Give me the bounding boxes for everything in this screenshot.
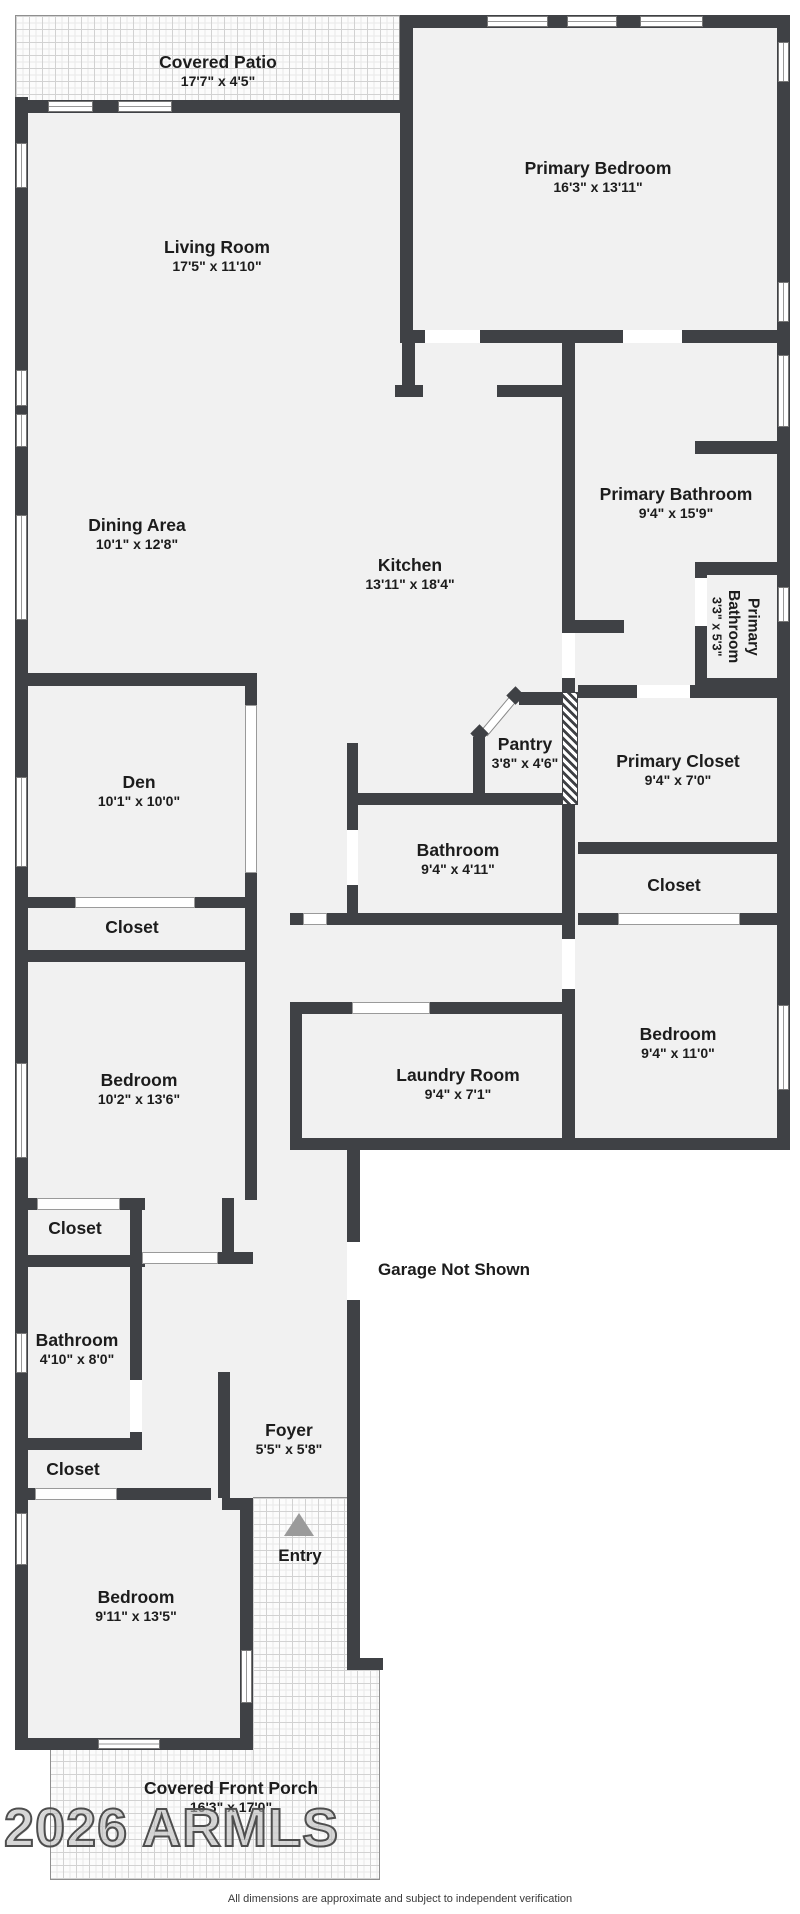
room-name: Foyer [256, 1420, 323, 1441]
room-name: Bathroom [417, 840, 500, 861]
room-name: Closet [48, 1218, 101, 1239]
room-dims: 10'2" x 13'6" [98, 1091, 180, 1108]
room-label-bathroom-hall: Bathroom 9'4" x 4'11" [417, 840, 500, 878]
room-dims: 9'4" x 7'1" [396, 1086, 519, 1103]
room-label-laundry-room: Laundry Room 9'4" x 7'1" [396, 1065, 519, 1103]
window [98, 1739, 160, 1749]
floor-plan: Covered Patio 17'7" x 4'5" Primary Bedro… [0, 0, 800, 1914]
room-dims: 16'3" x 13'11" [525, 179, 672, 196]
wall [400, 15, 413, 343]
room-label-foyer: Foyer 5'5" x 5'8" [256, 1420, 323, 1458]
room-name: Primary Closet [616, 751, 740, 772]
wall [562, 620, 624, 633]
window [16, 370, 27, 406]
door-opening [130, 1380, 142, 1432]
window [16, 1063, 27, 1158]
cased-opening [142, 1252, 218, 1264]
wall [245, 873, 257, 962]
room-name: Covered Patio [159, 52, 277, 73]
disclaimer-text: All dimensions are approximate and subje… [0, 1893, 800, 1905]
room-name: Den [98, 772, 180, 793]
room-dims: 9'4" x 4'11" [417, 861, 500, 878]
window [778, 355, 789, 427]
door-opening [347, 1242, 360, 1300]
wall [578, 913, 618, 925]
room-name: Closet [647, 875, 700, 896]
room-label-closet-right: Closet [647, 875, 700, 896]
wall [740, 913, 790, 925]
cased-opening [75, 897, 195, 908]
wall [562, 925, 575, 939]
room-label-bathroom-small: Bathroom 4'10" x 8'0" [36, 1330, 119, 1368]
room-label-primary-bathroom: Primary Bathroom 9'4" x 15'9" [600, 484, 753, 522]
room-label-closet-den: Closet [105, 917, 158, 938]
room-dims: 10'1" x 12'8" [88, 536, 186, 553]
door-opening [623, 330, 682, 343]
wall [15, 673, 257, 686]
garage-note: Garage Not Shown [378, 1260, 530, 1280]
room-label-den: Den 10'1" x 10'0" [98, 772, 180, 810]
room-dims: 9'4" x 15'9" [600, 505, 753, 522]
room-dims: 9'11" x 13'5" [95, 1608, 176, 1625]
wall [562, 343, 575, 633]
room-dims: 17'7" x 4'5" [159, 73, 277, 90]
room-label-primary-bedroom: Primary Bedroom 16'3" x 13'11" [525, 158, 672, 196]
wall [695, 562, 707, 578]
window [778, 282, 789, 322]
cased-opening [352, 1002, 430, 1014]
wall [245, 673, 257, 705]
wall [218, 1372, 230, 1498]
cased-opening [35, 1488, 117, 1500]
room-name: Dining Area [88, 515, 186, 536]
wall [777, 15, 790, 1150]
room-name: Primary Bathroom [600, 484, 753, 505]
room-dims: 3'8" x 4'6" [492, 755, 559, 772]
room-name: Bedroom [98, 1070, 180, 1091]
wall [480, 330, 623, 343]
wall [562, 678, 575, 692]
window [16, 515, 27, 620]
wall [578, 685, 637, 698]
cased-opening [303, 913, 327, 925]
wall [15, 97, 28, 1750]
wall [347, 805, 358, 830]
wall [395, 385, 423, 397]
room-dims: 5'5" x 5'8" [256, 1441, 323, 1458]
door-opening [425, 330, 480, 343]
room-dims: 17'5" x 11'10" [164, 258, 270, 275]
room-name: Laundry Room [396, 1065, 519, 1086]
room-dims: 10'1" x 10'0" [98, 793, 180, 810]
window [778, 587, 789, 622]
room-label-primary-bathroom-small: Primary Bathroom 3'3" x 5'3" [708, 572, 762, 682]
wall [400, 330, 425, 343]
room-label-bedroom-right: Bedroom 9'4" x 11'0" [640, 1024, 717, 1062]
window [241, 1650, 252, 1703]
window [16, 143, 27, 188]
room-dims: 13'11" x 18'4" [365, 576, 454, 593]
door-opening [562, 939, 575, 989]
cased-opening [37, 1198, 120, 1210]
door-opening [637, 685, 690, 698]
wall [562, 805, 575, 925]
entry-label: Entry [278, 1546, 321, 1566]
room-label-bedroom-left: Bedroom 10'2" x 13'6" [98, 1070, 180, 1108]
watermark: 2026 ARMLS [4, 1797, 339, 1859]
window [16, 1513, 27, 1565]
room-label-bedroom-bottom: Bedroom 9'11" x 13'5" [95, 1587, 176, 1625]
wall [473, 737, 485, 793]
room-name: Pantry [492, 734, 559, 755]
room-name: Bedroom [640, 1024, 717, 1045]
room-name: Closet [46, 1459, 99, 1480]
room-name: Kitchen [365, 555, 454, 576]
wall [15, 1255, 145, 1267]
room-label-dining-area: Dining Area 10'1" x 12'8" [88, 515, 186, 553]
window [778, 1005, 789, 1090]
room-label-living-room: Living Room 17'5" x 11'10" [164, 237, 270, 275]
room-label-pantry: Pantry 3'8" x 4'6" [492, 734, 559, 772]
room-label-closet-bedroom-left: Closet [48, 1218, 101, 1239]
wall [347, 1150, 360, 1670]
window [567, 16, 617, 27]
door-opening [695, 578, 707, 626]
room-name: Primary Bedroom [525, 158, 672, 179]
door-opening [562, 633, 575, 678]
entry-threshold [253, 1497, 350, 1498]
room-label-kitchen: Kitchen 13'11" x 18'4" [365, 555, 454, 593]
wall [245, 962, 257, 1200]
window [778, 42, 789, 82]
wall [290, 1002, 302, 1150]
cased-opening [618, 913, 740, 925]
window [16, 777, 27, 867]
window [640, 16, 703, 27]
cased-opening [245, 705, 257, 873]
wall [695, 441, 790, 454]
wall [347, 1658, 383, 1670]
wall [218, 1252, 253, 1264]
window [16, 1333, 27, 1373]
window [487, 16, 548, 27]
door-opening [347, 830, 358, 885]
room-dims: 9'4" x 11'0" [640, 1045, 717, 1062]
wall [348, 793, 578, 805]
porch-edge-right [379, 1670, 380, 1880]
wall [682, 330, 790, 343]
wall [347, 743, 358, 805]
room-label-primary-closet: Primary Closet 9'4" x 7'0" [616, 751, 740, 789]
hatched-wall [562, 692, 578, 805]
room-dims: 3'3" x 5'3" [708, 572, 724, 682]
window [16, 414, 27, 447]
room-name: Bathroom [36, 1330, 119, 1351]
room-name: Closet [105, 917, 158, 938]
wall [15, 1438, 142, 1450]
wall [130, 1198, 142, 1267]
window [118, 101, 172, 112]
wall [519, 692, 562, 705]
window [48, 101, 93, 112]
room-name: Primary Bathroom [724, 572, 763, 682]
room-label-closet-bottom: Closet [46, 1459, 99, 1480]
wall [690, 685, 790, 698]
room-label-covered-patio: Covered Patio 17'7" x 4'5" [159, 52, 277, 90]
room-dims: 4'10" x 8'0" [36, 1351, 119, 1368]
entry-arrow-icon [284, 1513, 314, 1536]
wall [290, 913, 565, 925]
wall [290, 1138, 790, 1150]
wall [578, 842, 790, 854]
wall [240, 1498, 253, 1748]
wall [497, 385, 563, 397]
porch-edge-bottom [50, 1879, 380, 1880]
wall [15, 950, 257, 962]
room-name: Living Room [164, 237, 270, 258]
room-name: Bedroom [95, 1587, 176, 1608]
room-dims: 9'4" x 7'0" [616, 772, 740, 789]
